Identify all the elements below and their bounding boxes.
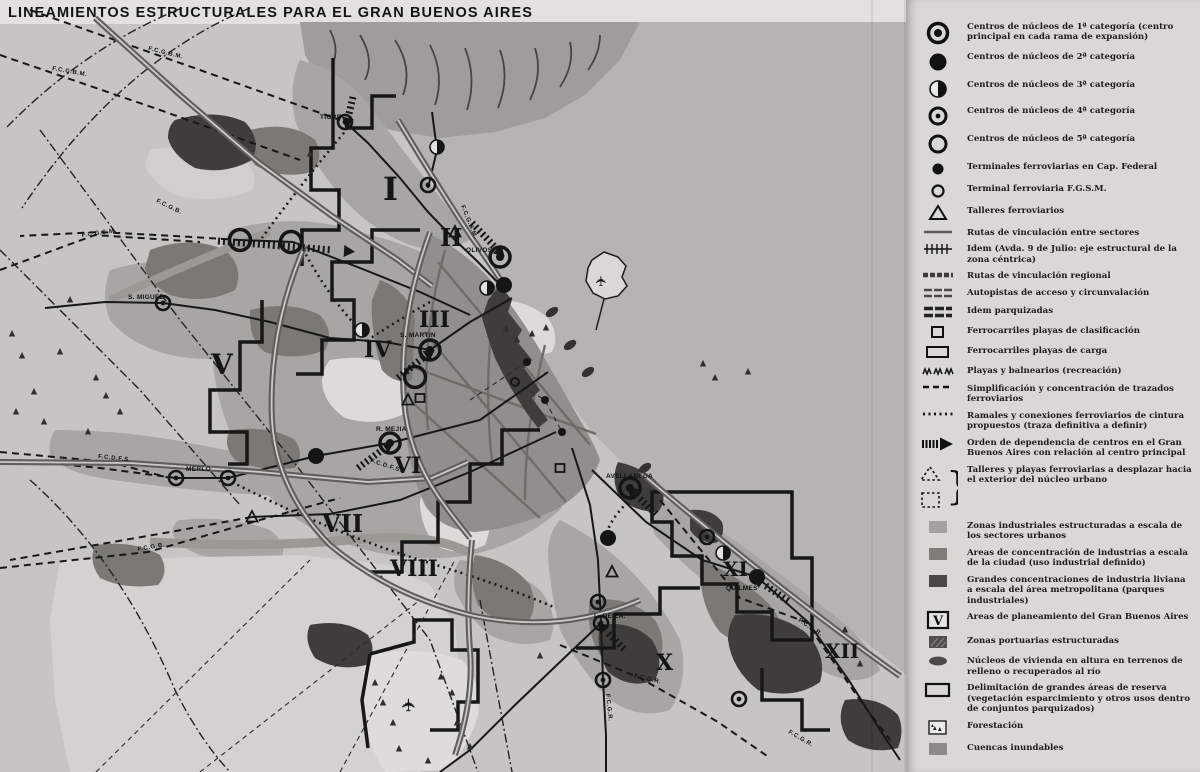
place-label: L. DE ZA. [594, 613, 626, 620]
marker-cat4 [599, 621, 604, 626]
legend-entry: Orden de dependencia de centros en el Gr… [918, 436, 1194, 459]
cuencas-inundables-icon [918, 741, 958, 757]
legend-entry: Rutas de vinculación regional [918, 269, 1194, 281]
marker-cat4 [226, 476, 231, 481]
talleres-desplazar-icon: } [918, 463, 958, 515]
area-numeral: III [419, 307, 450, 333]
legend-entry-label: Playas y balnearios (recreación) [967, 364, 1122, 376]
marker-cat1 [426, 346, 434, 354]
legend-entry: Ferrocarriles playas de clasificación [918, 324, 1194, 340]
legend-entry-label: Núcleos de vivienda en altura en terreno… [967, 654, 1194, 677]
legend-entry: Cuencas inundables [918, 741, 1194, 757]
legend-entry: Centros de núcleos de 5ª categoría [918, 132, 1194, 156]
legend-panel: Centros de núcleos de 1ª categoría (cent… [906, 0, 1200, 772]
talleres-icon [918, 204, 958, 222]
marker-cat2 [749, 569, 765, 585]
legend-entry-label: Centros de núcleos de 5ª categoría [967, 132, 1135, 144]
area-numeral: VI [393, 453, 421, 479]
legend-entry: Idem parquizadas [918, 304, 1194, 320]
marker-term [558, 428, 566, 436]
legend-entry-label: Terminales ferroviarias en Cap. Federal [967, 160, 1157, 172]
area-numeral: IV [364, 337, 392, 363]
grandes-concentraciones-icon [918, 573, 958, 589]
legend-entry-label: Ferrocarriles playas de clasificación [967, 324, 1140, 336]
marker-cat4 [174, 476, 179, 481]
marker-cat4 [601, 678, 606, 683]
legend-entry-label: Idem parquizadas [967, 304, 1053, 316]
marker-cat2 [600, 530, 616, 546]
legend-entry-label: Centros de núcleos de 3ª categoría [967, 78, 1135, 90]
zonas-portuarias-icon [918, 634, 958, 650]
place-label: AVELLANEDA [606, 473, 653, 480]
area-numeral: VII [321, 509, 363, 538]
marker-term [541, 396, 549, 404]
areas-concentracion-icon [918, 546, 958, 562]
marker-cat4 [426, 183, 431, 188]
legend-entry-label: Areas de planeamiento del Gran Buenos Ai… [967, 610, 1188, 622]
legend-entry: Ferrocarriles playas de carga [918, 344, 1194, 360]
marker-cat1 [496, 253, 504, 261]
legend-entry-label: Cuencas inundables [967, 741, 1064, 753]
place-label: QUILMES [726, 585, 758, 592]
nucleos-vivienda-icon [918, 654, 958, 668]
center-cat4-icon [918, 104, 958, 128]
legend-entry-label: Ferrocarriles playas de carga [967, 344, 1107, 356]
legend-entry: Zonas portuarias estructuradas [918, 634, 1194, 650]
legend-entry-label: Delimitación de grandes áreas de reserva… [967, 681, 1194, 714]
legend-entry: Centros de núcleos de 3ª categoría [918, 78, 1194, 100]
legend-entry: VAreas de planeamiento del Gran Buenos A… [918, 610, 1194, 630]
legend-entry-label: Talleres ferroviarios [967, 204, 1064, 216]
marker-cat4 [705, 535, 710, 540]
forestacion-icon [918, 719, 958, 737]
legend-entry: Playas y balnearios (recreación) [918, 364, 1194, 378]
marker-cat1 [626, 484, 634, 492]
legend-entry: Delimitación de grandes áreas de reserva… [918, 681, 1194, 714]
place-label: MERLO [186, 466, 211, 473]
ruta-sectores-icon [918, 226, 958, 238]
ruta-9julio-icon [918, 242, 958, 256]
legend-entry-label: Terminal ferroviaria F.G.S.M. [967, 182, 1107, 194]
center-cat5-icon [918, 132, 958, 156]
svg-text:}: } [946, 464, 958, 508]
place-label: S. MIGUEL [128, 294, 164, 301]
area-numeral: XI [723, 557, 748, 581]
autopistas-icon [918, 286, 958, 300]
legend-entry: Areas de concentración de industrias a e… [918, 546, 1194, 569]
legend-entry: Grandes concentraciones de industria liv… [918, 573, 1194, 606]
legend-entry-label: Autopistas de acceso y circunvalación [967, 286, 1149, 298]
legend-entry: Forestación [918, 719, 1194, 737]
legend-entry-label: Centros de núcleos de 4ª categoría [967, 104, 1135, 116]
legend-entry: Talleres ferroviarios [918, 204, 1194, 222]
legend-entry: Autopistas de acceso y circunvalación [918, 286, 1194, 300]
legend-entry-label: Rutas de vinculación regional [967, 269, 1111, 281]
legend-entry: Centros de núcleos de 1ª categoría (cent… [918, 20, 1194, 46]
zonas-industriales-icon [918, 519, 958, 535]
playa-carga-icon [918, 344, 958, 360]
svg-text:V: V [932, 614, 944, 629]
orden-dependencia-icon [918, 436, 958, 452]
map-sheet: LINEAMIENTOS ESTRUCTURALES PARA EL GRAN … [0, 0, 1200, 772]
area-numeral: VIII [389, 556, 438, 582]
legend-entry: Zonas industriales estructuradas a escal… [918, 519, 1194, 542]
marker-cat4 [596, 600, 601, 605]
terminal-capital-icon [918, 160, 958, 178]
legend-entry: Rutas de vinculación entre sectores [918, 226, 1194, 238]
marker-cat2 [308, 448, 324, 464]
legend-entry: Simplificación y concentración de trazad… [918, 382, 1194, 405]
legend-entry: Terminales ferroviarias en Cap. Federal [918, 160, 1194, 178]
area-numeral: V [210, 348, 234, 381]
place-label: R. MEJIA [376, 426, 407, 433]
page-title: LINEAMIENTOS ESTRUCTURALES PARA EL GRAN … [8, 5, 533, 21]
area-numeral: II [440, 223, 462, 252]
legend-entry-label: Idem (Avda. 9 de Julio: eje estructural … [967, 242, 1194, 265]
legend-entries: Centros de núcleos de 1ª categoría (cent… [906, 0, 1200, 757]
airplane-icon: ✈ [594, 275, 610, 287]
playa-clasificacion-icon [918, 324, 958, 340]
marker-cat4 [737, 697, 742, 702]
legend-entry-label: Rutas de vinculación entre sectores [967, 226, 1139, 238]
legend-entry: Ramales y conexiones ferroviarios de cin… [918, 409, 1194, 432]
legend-entry-label: Centros de núcleos de 1ª categoría (cent… [967, 20, 1194, 43]
center-cat2-icon [918, 50, 958, 74]
ruta-regional-icon [918, 269, 958, 281]
marker-cat4 [161, 301, 166, 306]
ramales-cintura-icon [918, 409, 958, 419]
playas-balnearios-icon [918, 364, 958, 378]
terminal-fgsm-icon [918, 182, 958, 200]
legend-entry: Centros de núcleos de 4ª categoría [918, 104, 1194, 128]
place-label: S. MARTIN [400, 332, 436, 339]
legend-entry-label: Talleres y playas ferroviarias a desplaz… [967, 463, 1194, 486]
center-cat3-icon [918, 78, 958, 100]
area-numeral: I [383, 170, 398, 208]
legend-entry-label: Centros de núcleos de 2ª categoría [967, 50, 1135, 62]
delimitacion-reserva-icon [918, 681, 958, 699]
marker-term [523, 358, 531, 366]
autopistas-parquizadas-icon [918, 304, 958, 320]
area-numeral: X [656, 650, 674, 676]
legend-entry-label: Ramales y conexiones ferroviarios de cin… [967, 409, 1194, 432]
marker-cat2 [496, 277, 512, 293]
place-label: OLIVOS [466, 247, 493, 254]
legend-entry-label: Grandes concentraciones de industria liv… [967, 573, 1194, 606]
legend-entry: Núcleos de vivienda en altura en terreno… [918, 654, 1194, 677]
legend-entry: Terminal ferroviaria F.G.S.M. [918, 182, 1194, 200]
place-label: TIGRE [320, 114, 342, 121]
legend-entry: }Talleres y playas ferroviarias a despla… [918, 463, 1194, 515]
legend-entry-label: Zonas portuarias estructuradas [967, 634, 1119, 646]
legend-entry-label: Forestación [967, 719, 1023, 731]
marker-cat4 [343, 120, 348, 125]
legend-entry-label: Simplificación y concentración de trazad… [967, 382, 1194, 405]
legend-entry-label: Zonas industriales estructuradas a escal… [967, 519, 1194, 542]
legend-entry: Centros de núcleos de 2ª categoría [918, 50, 1194, 74]
legend-entry-label: Areas de concentración de industrias a e… [967, 546, 1194, 569]
areas-planeamiento-icon: V [918, 610, 958, 630]
center-cat1-icon [918, 20, 958, 46]
marker-cat1 [386, 439, 394, 447]
legend-entry: Idem (Avda. 9 de Julio: eje estructural … [918, 242, 1194, 265]
legend-entry-label: Orden de dependencia de centros en el Gr… [967, 436, 1194, 459]
area-numeral: XII [825, 639, 859, 663]
airplane-icon: ✈ [399, 697, 420, 712]
simplificacion-icon [918, 382, 958, 392]
